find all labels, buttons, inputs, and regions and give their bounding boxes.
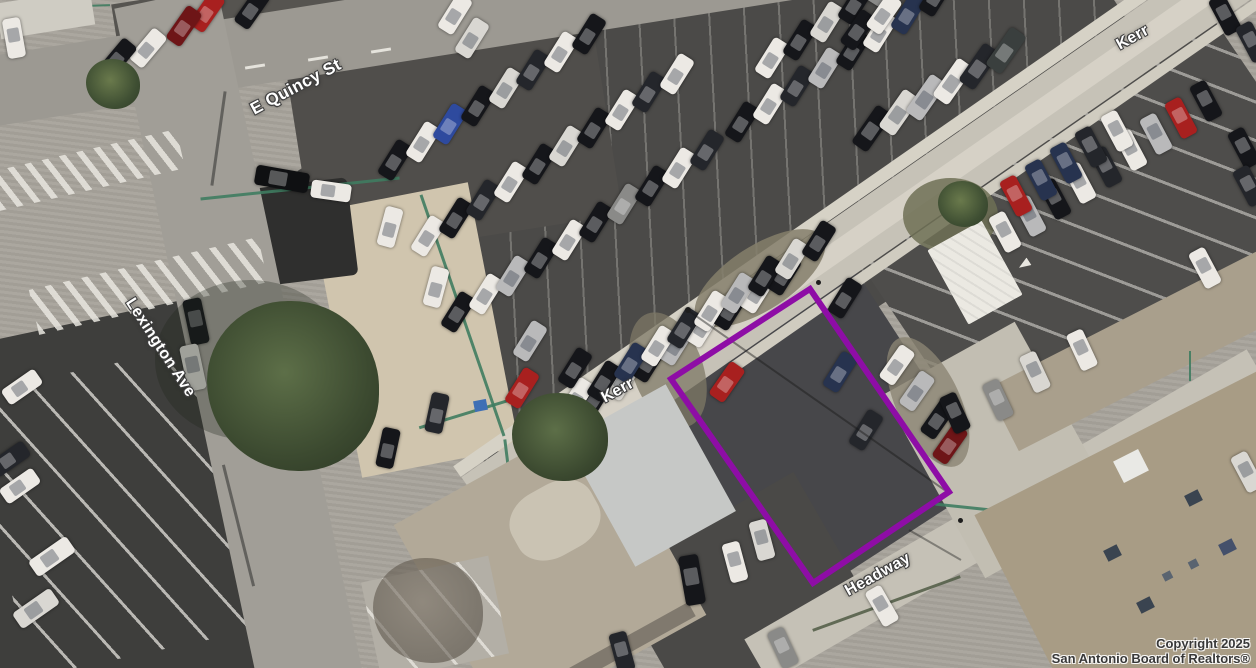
copyright-notice: Copyright 2025 San Antonio Board of Real… bbox=[1052, 636, 1250, 666]
car-windshield bbox=[696, 143, 714, 161]
car-windshield bbox=[530, 251, 548, 269]
car-windshield bbox=[429, 408, 444, 424]
car-windshield bbox=[1196, 90, 1214, 108]
car-windshield bbox=[613, 641, 629, 657]
car-windshield bbox=[834, 291, 852, 309]
car-windshield bbox=[829, 365, 847, 383]
car-windshield bbox=[945, 402, 962, 420]
car-windshield bbox=[873, 7, 891, 26]
car-windshield bbox=[583, 121, 601, 139]
car-windshield bbox=[773, 637, 790, 655]
car-windshield bbox=[417, 229, 435, 247]
palm-tree bbox=[86, 59, 140, 109]
car-windshield bbox=[814, 61, 832, 79]
car-windshield bbox=[528, 157, 546, 175]
car-windshield bbox=[1195, 256, 1213, 274]
car-windshield bbox=[412, 135, 430, 153]
car-windshield bbox=[381, 221, 397, 237]
car-windshield bbox=[759, 97, 777, 115]
car-windshield bbox=[620, 356, 638, 374]
car-windshield bbox=[427, 281, 443, 297]
car-windshield bbox=[906, 384, 924, 403]
car-windshield bbox=[23, 600, 44, 620]
car-windshield bbox=[872, 594, 890, 612]
car-windshield bbox=[716, 375, 734, 394]
car-windshield bbox=[731, 115, 749, 133]
car-windshield bbox=[886, 358, 904, 377]
car-windshield bbox=[461, 31, 479, 49]
car-windshield bbox=[1106, 119, 1124, 137]
car-windshield bbox=[647, 339, 665, 357]
car-windshield bbox=[384, 153, 402, 171]
car-windshield bbox=[241, 2, 259, 21]
utility-pole bbox=[816, 280, 821, 285]
car-windshield bbox=[380, 443, 395, 459]
car-windshield bbox=[1072, 339, 1089, 357]
car-windshield bbox=[1237, 460, 1255, 478]
car-windshield bbox=[789, 33, 807, 51]
car-windshield bbox=[761, 51, 779, 69]
car-windshield bbox=[753, 529, 769, 545]
car-windshield bbox=[781, 252, 799, 270]
car-windshield bbox=[611, 103, 629, 121]
car-windshield bbox=[927, 412, 945, 431]
car-windshield bbox=[519, 334, 537, 352]
car-windshield bbox=[754, 269, 772, 287]
copyright-line2: San Antonio Board of Realtors® bbox=[1052, 651, 1250, 666]
car-windshield bbox=[268, 170, 289, 187]
car-windshield bbox=[1025, 361, 1042, 379]
car-windshield bbox=[666, 67, 684, 85]
car-windshield bbox=[847, 23, 865, 42]
car-windshield bbox=[1081, 135, 1099, 153]
car-windshield bbox=[914, 89, 934, 110]
car-windshield bbox=[988, 389, 1005, 407]
copyright-line1: Copyright 2025 bbox=[1052, 636, 1250, 651]
car-windshield bbox=[1242, 30, 1256, 48]
car-windshield bbox=[321, 183, 336, 198]
car-windshield bbox=[1215, 3, 1233, 21]
tree-medium bbox=[512, 393, 608, 481]
car-windshield bbox=[613, 197, 631, 215]
car-windshield bbox=[173, 19, 191, 38]
car-windshield bbox=[495, 81, 513, 99]
car-windshield bbox=[1146, 122, 1164, 140]
car-windshield bbox=[1031, 168, 1049, 186]
car-windshield bbox=[564, 361, 582, 379]
car-windshield bbox=[683, 567, 700, 586]
car-windshield bbox=[8, 478, 27, 496]
handicap-space bbox=[473, 398, 488, 411]
car-windshield bbox=[467, 99, 485, 117]
car-windshield bbox=[511, 381, 529, 399]
palm-tree bbox=[938, 181, 988, 227]
car-windshield bbox=[558, 233, 576, 251]
car-windshield bbox=[10, 379, 29, 397]
car-windshield bbox=[1056, 152, 1074, 170]
car-windshield bbox=[444, 7, 462, 25]
car-windshield bbox=[475, 287, 493, 305]
car-windshield bbox=[447, 305, 465, 323]
car-windshield bbox=[808, 234, 826, 252]
car-windshield bbox=[445, 211, 463, 229]
car-windshield bbox=[641, 179, 659, 197]
car-windshield bbox=[550, 45, 568, 63]
satellite-scene bbox=[0, 0, 1256, 668]
fence-line bbox=[1189, 351, 1192, 381]
car-windshield bbox=[1234, 136, 1252, 154]
car-windshield bbox=[1239, 174, 1256, 192]
car-windshield bbox=[939, 437, 957, 456]
satellite-map-canvas[interactable]: E Quincy St Lexington Ave Kerr Kerr Head… bbox=[0, 0, 1256, 668]
car-windshield bbox=[578, 27, 596, 45]
utility-pole bbox=[685, 307, 691, 313]
car-windshield bbox=[897, 7, 915, 25]
car-windshield bbox=[1171, 106, 1189, 124]
car-windshield bbox=[500, 175, 518, 193]
car-windshield bbox=[726, 551, 742, 567]
car-windshield bbox=[39, 548, 60, 568]
car-windshield bbox=[1006, 184, 1024, 202]
car-windshield bbox=[6, 27, 21, 43]
car-windshield bbox=[995, 220, 1013, 238]
utility-pole bbox=[958, 518, 963, 523]
